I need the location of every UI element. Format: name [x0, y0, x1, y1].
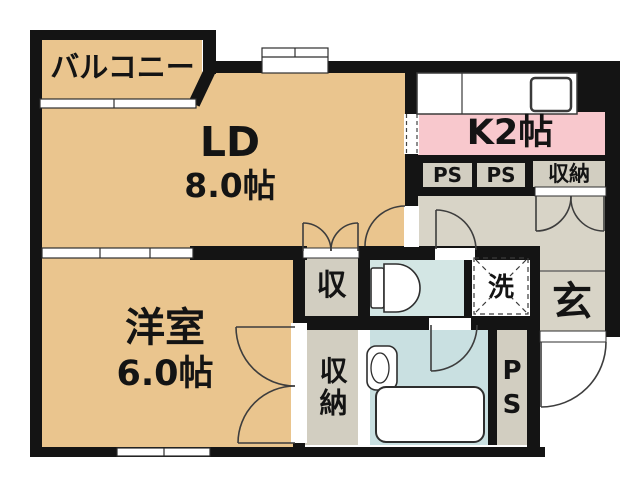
entrance-label: 玄: [542, 276, 602, 328]
closet-lower-label: 収納: [305, 336, 358, 440]
kitchen-label: K2帖: [425, 111, 595, 155]
wall-segment: [464, 256, 472, 316]
wall-segment: [405, 61, 620, 73]
pipe-shaft-label: PS: [497, 342, 527, 438]
closet-upper-label: 収: [305, 258, 358, 314]
pipe-space-2-label: PS: [477, 163, 525, 187]
kitchen-counter-icon: [417, 73, 577, 114]
bath-door-opening: [429, 318, 471, 330]
wall-segment: [293, 316, 540, 330]
ld-door-opening: [404, 206, 419, 247]
wall-segment: [190, 246, 307, 260]
wall-segment: [30, 30, 215, 40]
sink-icon: [531, 78, 571, 111]
pipe-space-1-label: PS: [423, 163, 472, 187]
western-room-floor: [42, 256, 293, 447]
western-room-label: 洋室: [70, 306, 260, 350]
wall-segment: [326, 61, 413, 73]
kitchen-opening: [404, 114, 419, 154]
living-dining-size: 8.0帖: [150, 164, 310, 206]
wall-segment: [405, 61, 418, 116]
wall-segment: [605, 61, 620, 337]
wall-segment: [30, 447, 545, 457]
hall-storage-label: 収納: [533, 161, 605, 187]
wall-segment: [30, 30, 42, 457]
wall-segment: [527, 330, 540, 457]
bathroom-floor: [370, 330, 488, 445]
wall-segment: [203, 61, 264, 73]
wall-segment: [488, 330, 497, 445]
western-room-size: 6.0帖: [70, 353, 260, 395]
entrance-door-arc: [541, 342, 606, 407]
floorplan: バルコニー LD 8.0帖 K2帖 PS PS 収納 洋室 6.0帖 収 収納 …: [0, 0, 640, 483]
toilet-door-opening: [435, 248, 475, 260]
balcony-label: バルコニー: [40, 46, 205, 88]
living-dining-label: LD: [150, 118, 310, 166]
wall-segment: [575, 73, 607, 112]
washer-space-label: 洗: [474, 268, 528, 308]
bay-window: [262, 48, 328, 73]
toilet-room-floor: [370, 256, 464, 316]
